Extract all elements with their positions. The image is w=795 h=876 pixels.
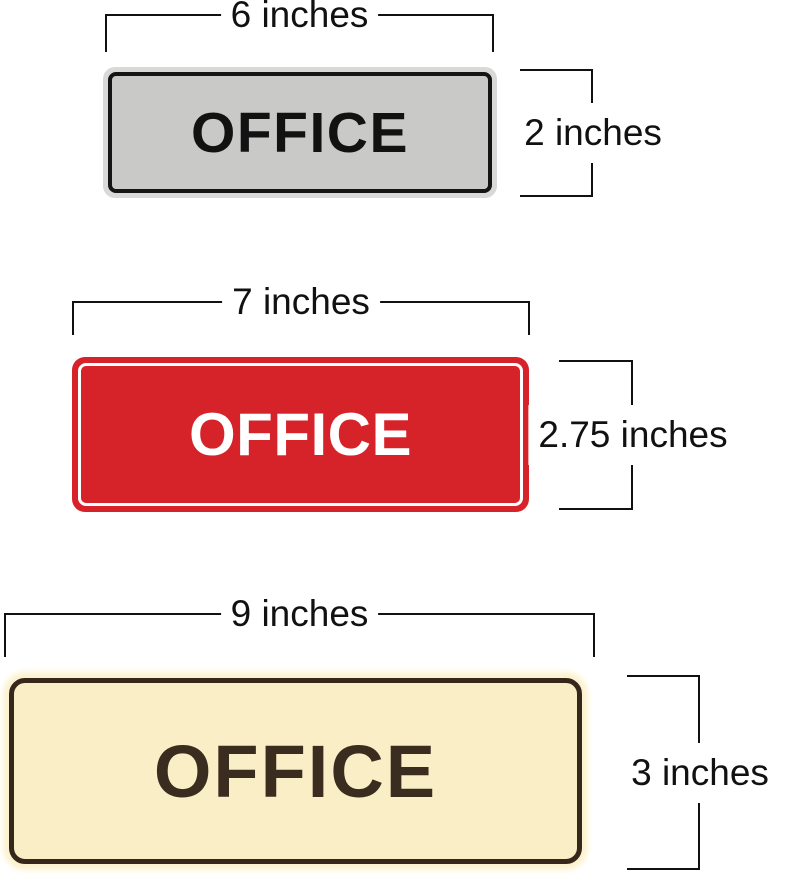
product-dimension-diagram: 6 inches OFFICE 2 inches 7 inches OFFICE… [0, 0, 795, 876]
width-label: 9 inches [221, 593, 379, 635]
office-sign-gray-face: OFFICE [108, 72, 492, 193]
dimension-tick-left [4, 613, 6, 657]
width-dimension-bracket-7in: 7 inches [72, 301, 530, 335]
dimension-tick-bottom [627, 868, 700, 870]
height-dimension-bracket-3in: 3 inches [627, 675, 700, 870]
height-label: 2.75 inches [528, 405, 737, 465]
width-label: 6 inches [221, 0, 379, 36]
width-dimension-bracket-6in: 6 inches [105, 14, 494, 52]
width-label: 7 inches [222, 281, 380, 323]
dimension-tick-right [593, 613, 595, 657]
sign-text: OFFICE [72, 357, 529, 512]
dimension-tick-bottom [520, 195, 593, 197]
sign-text: OFFICE [191, 100, 409, 166]
dimension-tick-top [520, 69, 593, 71]
dimension-tick-top [559, 360, 633, 362]
height-label: 2 inches [514, 103, 672, 163]
height-dimension-bracket-2-75in: 2.75 inches [559, 360, 633, 510]
height-label: 3 inches [621, 743, 779, 803]
sign-text: OFFICE [154, 729, 437, 814]
office-sign-gray: OFFICE [103, 67, 497, 198]
width-dimension-bracket-9in: 9 inches [4, 613, 595, 657]
office-sign-red: OFFICE [72, 357, 529, 512]
dimension-tick-bottom [559, 508, 633, 510]
dimension-tick-right [492, 14, 494, 52]
office-sign-cream: OFFICE [9, 678, 582, 864]
height-dimension-bracket-2in: 2 inches [520, 69, 593, 197]
dimension-tick-top [627, 675, 700, 677]
dimension-tick-left [105, 14, 107, 52]
dimension-tick-left [72, 301, 74, 335]
dimension-tick-right [528, 301, 530, 335]
